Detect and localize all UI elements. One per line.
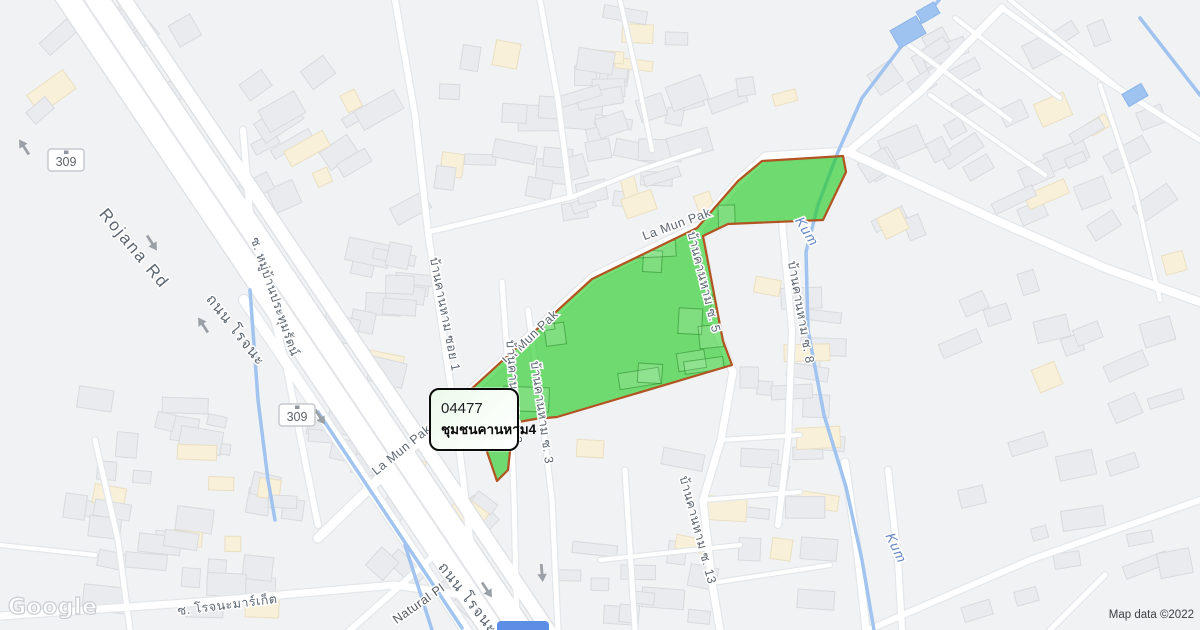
building <box>591 578 609 591</box>
building <box>785 497 824 519</box>
building <box>177 444 217 460</box>
route-shield-309-south: 309 <box>279 404 315 426</box>
building <box>800 537 838 561</box>
parcel-name: ชุมชนคานหาม4 <box>441 420 507 441</box>
building <box>125 552 168 571</box>
building <box>757 380 773 395</box>
building <box>385 275 414 294</box>
building <box>585 138 612 161</box>
building <box>738 538 761 562</box>
shield-crest-mark <box>64 151 69 155</box>
building <box>665 32 688 45</box>
building <box>434 165 456 190</box>
parcel-id: 04477 <box>441 397 507 420</box>
building <box>465 154 496 165</box>
building <box>181 567 200 587</box>
shield-number: 309 <box>287 410 308 424</box>
parcel-building <box>637 363 662 384</box>
shield-crest-mark <box>295 406 300 410</box>
building <box>132 470 151 484</box>
building <box>207 572 247 597</box>
poi-box-partial[interactable] <box>497 621 549 630</box>
building <box>208 476 234 490</box>
building <box>162 397 208 414</box>
building <box>175 506 214 534</box>
parcel-label-box[interactable]: 04477 ชุมชนคานหาม4 <box>429 388 519 451</box>
building <box>525 176 553 200</box>
building <box>385 242 412 270</box>
building <box>556 570 581 581</box>
building <box>225 536 241 551</box>
map-canvas[interactable]: Rojana Rd ถนน โรจนะ ถนน โรจนะ ซ. หมู่บ้า… <box>0 0 1200 630</box>
building <box>439 84 460 100</box>
building <box>770 537 793 561</box>
building <box>634 591 655 605</box>
building <box>382 298 416 316</box>
building <box>797 589 835 610</box>
route-shield-309-north: 309 <box>48 149 84 171</box>
map-viewport[interactable]: Rojana Rd ถนน โรจนะ ถนน โรจนะ ซ. หมู่บ้า… <box>0 0 1200 630</box>
building <box>736 76 756 96</box>
shield-number: 309 <box>56 155 77 169</box>
building <box>115 432 138 459</box>
google-logo[interactable]: Google <box>8 595 98 620</box>
building <box>77 386 115 412</box>
building <box>492 40 521 69</box>
map-attribution: Map data ©2022 <box>1109 609 1194 621</box>
building <box>621 565 656 580</box>
building <box>576 439 604 458</box>
building <box>502 103 528 123</box>
building <box>460 45 481 72</box>
building <box>688 609 711 624</box>
building <box>155 411 177 432</box>
building <box>740 367 759 388</box>
building <box>63 493 88 520</box>
